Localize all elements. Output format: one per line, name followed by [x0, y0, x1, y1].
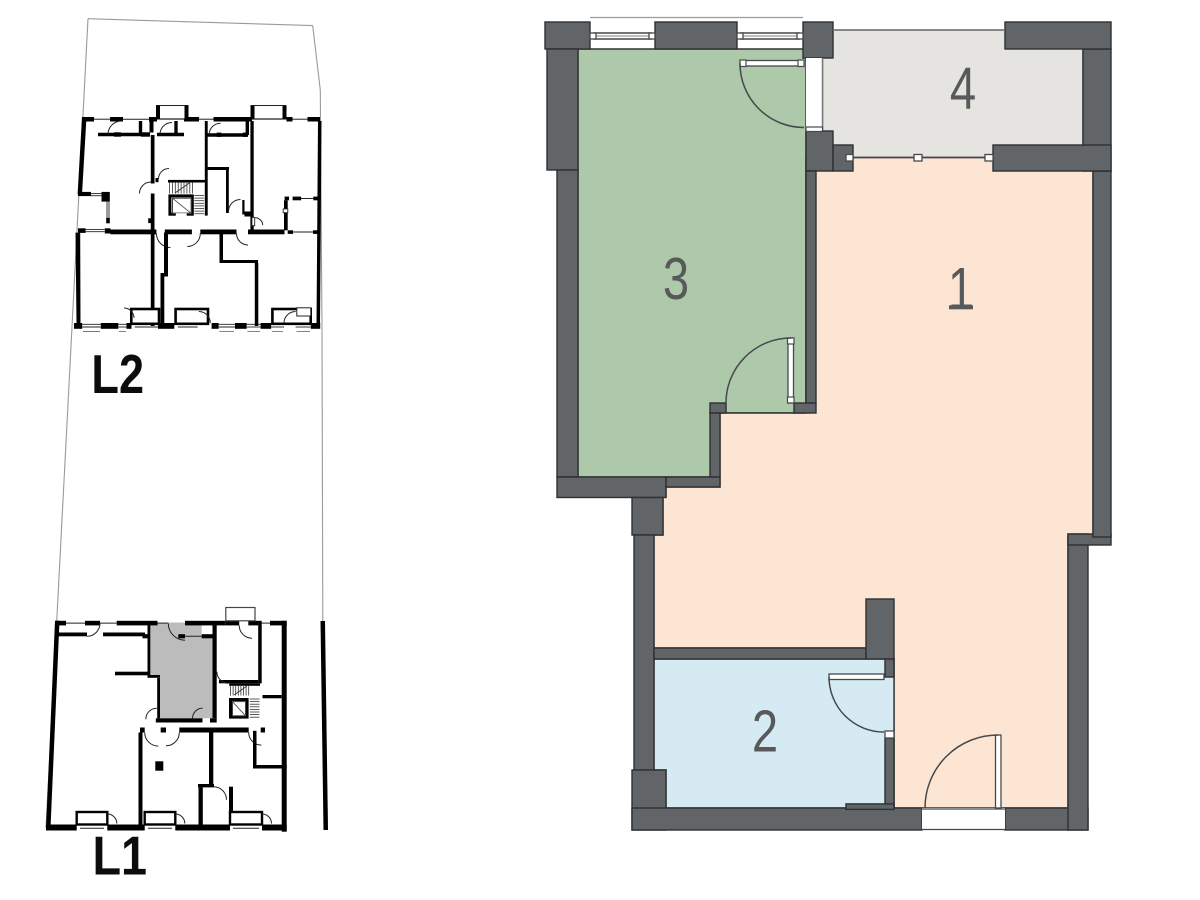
svg-text:2: 2 — [752, 700, 778, 765]
svg-text:1: 1 — [948, 257, 974, 322]
svg-text:3: 3 — [663, 247, 689, 312]
svg-text:4: 4 — [950, 57, 976, 122]
svg-text:L2: L2 — [91, 343, 144, 405]
svg-text:L1: L1 — [93, 825, 148, 886]
